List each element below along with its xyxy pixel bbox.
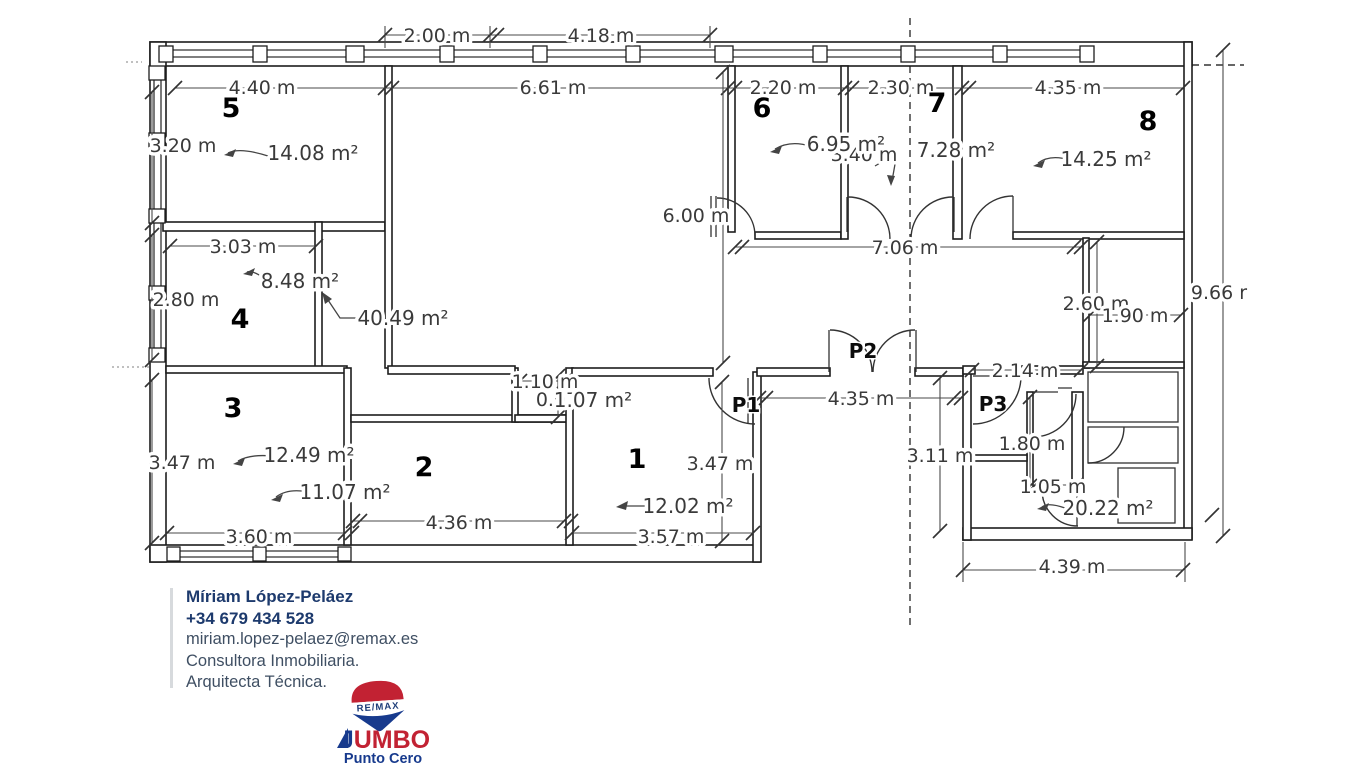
wall-room3-top	[166, 366, 347, 373]
wall-bath-divider	[970, 455, 1027, 461]
dim-label: 2.14 m	[992, 360, 1059, 382]
door-wc-arc	[1033, 394, 1076, 437]
wall-top	[150, 42, 1192, 66]
dim-label: 4.39 m	[1039, 556, 1106, 578]
dim-label: 3.47 m	[149, 452, 216, 474]
balloon-brand-text: RE/MAX	[356, 701, 400, 715]
area-label: 14.25 m²	[1060, 147, 1151, 171]
room-number-1: 1	[628, 444, 647, 475]
room-number-5: 5	[222, 93, 241, 124]
wall-bottom-right	[963, 528, 1192, 540]
dim-label: 2.00 m	[404, 25, 471, 47]
balloon-top	[350, 679, 403, 703]
room-number-7: 7	[928, 88, 947, 119]
agent-email[interactable]: miriam.lopez-pelaez@remax.es	[186, 629, 418, 651]
door-label-p1: P1	[732, 393, 761, 417]
dim-label: 4.35 m	[1035, 77, 1102, 99]
door-room7-right-arc	[911, 197, 953, 239]
dim-label: 4.35 m	[828, 388, 895, 410]
room-number-3: 3	[224, 393, 243, 424]
wall-room5-bottom	[163, 222, 385, 231]
agent-role-1: Consultora Inmobiliaria.	[186, 651, 418, 673]
wall-room6-bottom	[755, 232, 841, 239]
remax-balloon-icon: RE/MAX JUMBO Punto Cero	[328, 676, 438, 768]
dim-label: 4.36 m	[426, 512, 493, 534]
wall-room1-top	[572, 368, 713, 376]
logo-tagline: Punto Cero	[344, 751, 422, 767]
remax-jumbo-logo: RE/MAX JUMBO Punto Cero	[328, 676, 438, 768]
dim-label: 1.80 m	[999, 433, 1066, 455]
area-label: 12.49 m²	[263, 443, 354, 467]
dim-label: 2.30 m	[868, 77, 935, 99]
dim-label: 3.60 m	[226, 526, 293, 548]
dim-label: 3.03 m	[210, 236, 277, 258]
area-label: 12.02 m²	[642, 494, 733, 518]
door-label-p2: P2	[849, 339, 878, 363]
area-label: 1.07 m²	[554, 388, 632, 412]
room-number-8: 8	[1139, 106, 1158, 137]
dim-label: 3.57 m	[638, 526, 705, 548]
door-room7-left-arc	[848, 197, 890, 239]
dim-label: 1.90 m	[1102, 305, 1169, 327]
area-label: 8.48 m²	[261, 269, 339, 293]
agent-phone: +34 679 434 528	[186, 608, 418, 630]
wall-closet-bottom	[515, 415, 572, 422]
wall-notch-b	[915, 368, 963, 376]
dim-label: 3.11 m	[907, 445, 974, 467]
wall-hall-bottom-a	[388, 366, 515, 374]
door-label-p3: P3	[979, 392, 1008, 416]
wall-room8-bottom	[1013, 232, 1184, 239]
dim-label: 3.47 m	[687, 453, 754, 475]
dim-label: 3.20 m	[150, 135, 217, 157]
area-label: 7.28 m²	[917, 138, 995, 162]
area-label: 6.95 m²	[807, 132, 885, 156]
dim-label: 7.06 m	[872, 237, 939, 259]
dim-label: 9.66 r	[1191, 282, 1247, 304]
dim-label: 6.61 m	[520, 77, 587, 99]
agent-name: Míriam López-Peláez	[186, 586, 418, 608]
dim-label: 4.18 m	[568, 25, 635, 47]
room-numbers: 1 2 3 4 5 6 7 8	[222, 88, 1158, 483]
room-number-2: 2	[415, 452, 434, 483]
dim-label: 2.80 m	[153, 289, 220, 311]
door-cubicle-arc	[1088, 427, 1124, 463]
wall-notch-a	[757, 368, 830, 376]
area-label: 20.22 m²	[1062, 496, 1153, 520]
area-label: 40.49 m²	[357, 306, 448, 330]
door-p2-right-arc	[873, 330, 915, 372]
room-number-4: 4	[231, 304, 250, 335]
door-room8-arc	[970, 196, 1013, 239]
dim-label: 1.05 m	[1020, 476, 1087, 498]
area-label: 11.07 m²	[299, 480, 390, 504]
logo-title: JUMBO	[340, 726, 430, 754]
area-label: 14.08 m²	[267, 141, 358, 165]
room-number-6: 6	[753, 93, 772, 124]
floor-plan-page: 2.00 m 4.18 m 4.40 m 6.61 m 2.20 m 2.30 …	[0, 0, 1366, 768]
contact-accent-bar	[170, 588, 173, 688]
dim-label: 6.00 m	[663, 205, 730, 227]
